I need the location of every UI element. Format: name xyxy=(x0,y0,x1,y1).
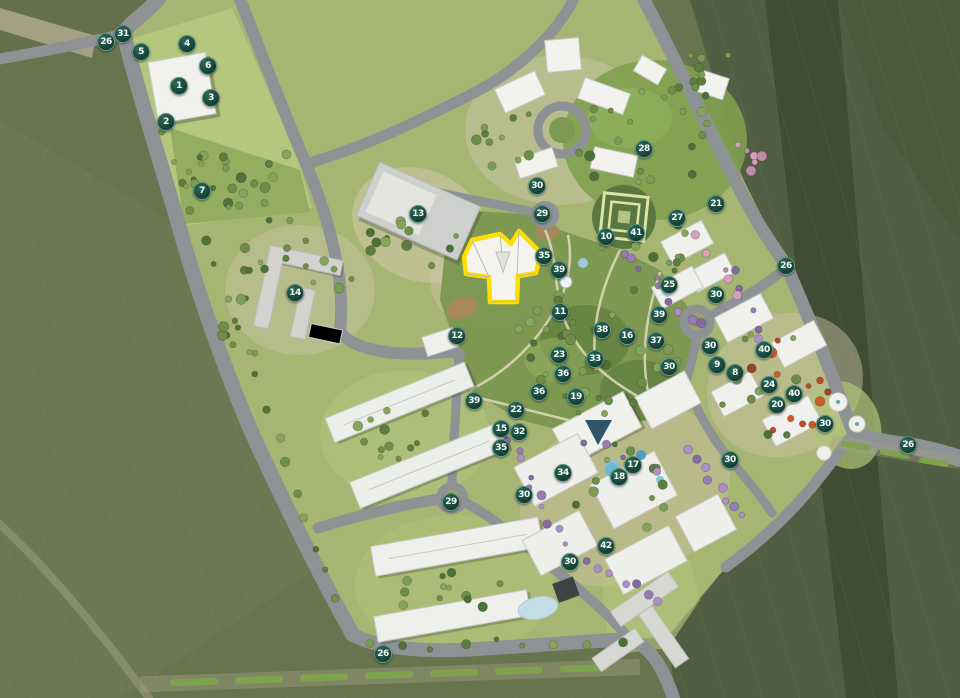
plan-marker-30: 30 xyxy=(515,486,533,504)
plan-marker-20: 20 xyxy=(768,396,786,414)
plan-marker-35: 35 xyxy=(492,439,510,457)
plan-marker-9: 9 xyxy=(708,356,726,374)
plan-marker-40: 40 xyxy=(755,341,773,359)
plan-marker-26: 26 xyxy=(899,436,917,454)
plan-marker-26: 26 xyxy=(374,645,392,663)
plan-marker-12: 12 xyxy=(448,327,466,345)
plan-marker-31: 31 xyxy=(114,25,132,43)
site-plan: 3126546132713141230292810412721262530353… xyxy=(0,0,960,698)
plan-marker-3: 3 xyxy=(202,89,220,107)
site-plan-graphic xyxy=(0,0,960,698)
plan-marker-30: 30 xyxy=(660,358,678,376)
plan-marker-17: 17 xyxy=(624,456,642,474)
plan-marker-23: 23 xyxy=(550,346,568,364)
plan-marker-30: 30 xyxy=(528,177,546,195)
plan-marker-8: 8 xyxy=(726,364,744,382)
plan-marker-40: 40 xyxy=(785,385,803,403)
plan-marker-22: 22 xyxy=(507,401,525,419)
plan-marker-25: 25 xyxy=(660,276,678,294)
plan-marker-19: 19 xyxy=(567,388,585,406)
plan-marker-42: 42 xyxy=(597,537,615,555)
plan-marker-39: 39 xyxy=(550,261,568,279)
plan-marker-26: 26 xyxy=(777,257,795,275)
plan-marker-36: 36 xyxy=(530,383,548,401)
plan-marker-39: 39 xyxy=(650,306,668,324)
plan-marker-14: 14 xyxy=(286,284,304,302)
plan-marker-10: 10 xyxy=(597,228,615,246)
plan-marker-28: 28 xyxy=(635,140,653,158)
plan-marker-6: 6 xyxy=(199,57,217,75)
plan-marker-15: 15 xyxy=(492,420,510,438)
plan-marker-35: 35 xyxy=(535,247,553,265)
plan-marker-30: 30 xyxy=(816,415,834,433)
plan-marker-18: 18 xyxy=(610,468,628,486)
plan-marker-30: 30 xyxy=(561,553,579,571)
plan-marker-30: 30 xyxy=(707,286,725,304)
plan-marker-34: 34 xyxy=(554,464,572,482)
plan-marker-37: 37 xyxy=(647,332,665,350)
plan-marker-33: 33 xyxy=(586,350,604,368)
plan-marker-7: 7 xyxy=(193,182,211,200)
plan-marker-16: 16 xyxy=(618,327,636,345)
plan-marker-30: 30 xyxy=(701,337,719,355)
plan-marker-29: 29 xyxy=(442,493,460,511)
plan-marker-29: 29 xyxy=(533,205,551,223)
plan-marker-41: 41 xyxy=(627,224,645,242)
plan-marker-30: 30 xyxy=(721,451,739,469)
plan-marker-1: 1 xyxy=(170,77,188,95)
plan-marker-11: 11 xyxy=(551,303,569,321)
plan-marker-26: 26 xyxy=(97,33,115,51)
plan-marker-39: 39 xyxy=(465,392,483,410)
plan-marker-24: 24 xyxy=(760,376,778,394)
plan-marker-27: 27 xyxy=(668,209,686,227)
plan-marker-36: 36 xyxy=(554,365,572,383)
plan-marker-32: 32 xyxy=(510,423,528,441)
plan-marker-13: 13 xyxy=(409,205,427,223)
plan-marker-21: 21 xyxy=(707,195,725,213)
plan-marker-2: 2 xyxy=(157,113,175,131)
plan-marker-4: 4 xyxy=(178,35,196,53)
plan-marker-38: 38 xyxy=(593,321,611,339)
plan-marker-5: 5 xyxy=(132,43,150,61)
